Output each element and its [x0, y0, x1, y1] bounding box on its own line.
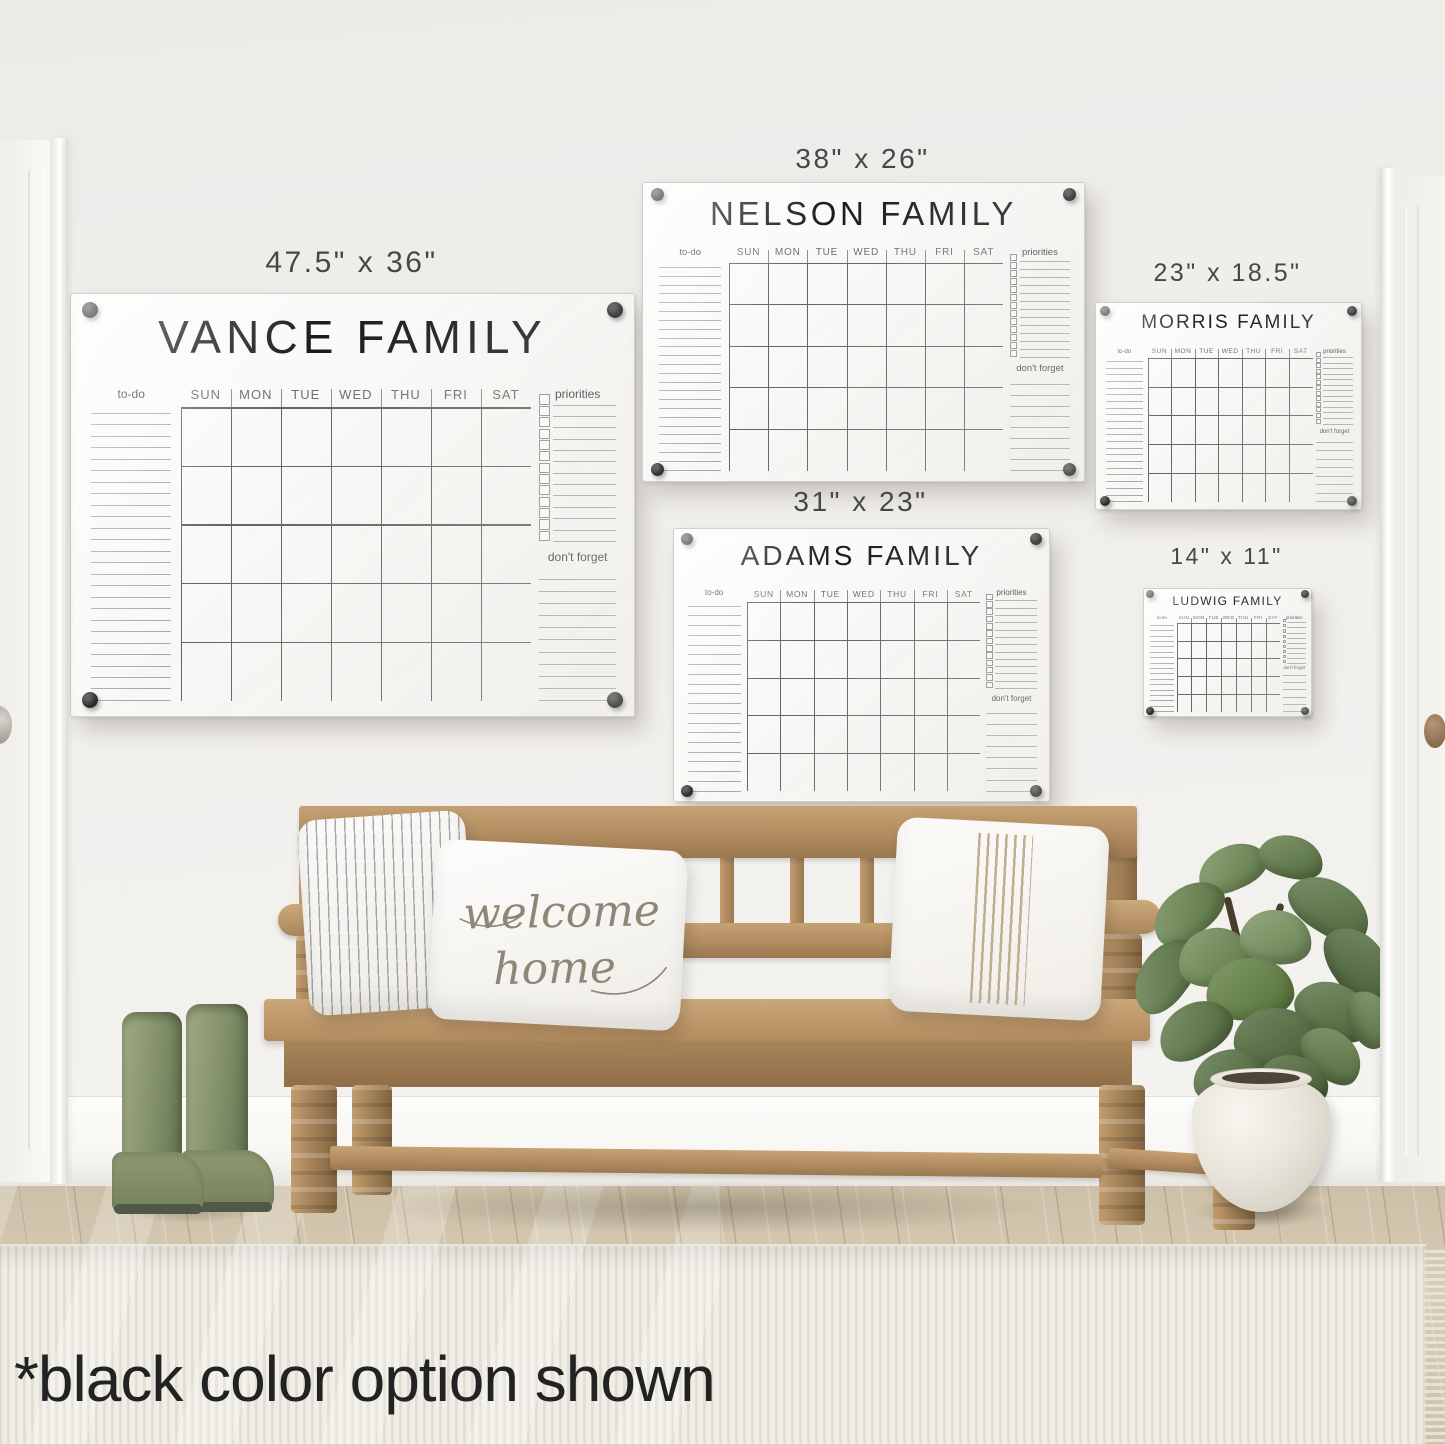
dont-forget-line: [986, 713, 1037, 714]
todo-line: [1106, 428, 1144, 429]
dont-forget-line: [1283, 689, 1306, 690]
priority-checkbox: [539, 451, 549, 461]
priority-line: [1287, 658, 1306, 659]
priority-checkbox: [986, 652, 993, 659]
todo-line: [1106, 441, 1144, 442]
priority-line: [1020, 349, 1070, 350]
priority-line: [1020, 325, 1070, 326]
todo-line: [659, 434, 722, 435]
priority-checkbox: [1283, 645, 1286, 648]
dont-forget-line: [1283, 704, 1306, 705]
grid-vline: [847, 602, 848, 792]
todo-line: [1106, 394, 1144, 395]
grid-vline: [914, 602, 915, 792]
priority-line: [1287, 622, 1306, 623]
priority-line: [553, 507, 616, 508]
grid-vline: [1171, 358, 1172, 502]
todo-line: [1150, 646, 1174, 647]
todo-line: [688, 684, 741, 685]
priority-checkbox: [1010, 302, 1017, 309]
standoff-dot: [1100, 496, 1110, 506]
todo-line: [91, 643, 171, 644]
todo-line: [688, 635, 741, 636]
day-header: FRI: [431, 388, 481, 401]
day-header: FRI: [925, 248, 964, 258]
day-header: SUN: [747, 590, 780, 599]
grid-vline: [1191, 623, 1192, 712]
day-header: THU: [1236, 616, 1251, 621]
dont-forget-line: [1283, 697, 1306, 698]
todo-line: [1106, 488, 1144, 489]
grid-vline: [1266, 623, 1267, 712]
grid-vline: [1148, 358, 1149, 502]
priority-checkbox: [1316, 369, 1321, 374]
standoff-dot: [681, 785, 693, 797]
priority-checkbox: [539, 440, 549, 450]
todo-line: [1106, 361, 1144, 362]
grid-hline: [181, 642, 531, 643]
day-header: WED: [1218, 349, 1242, 356]
todo-line: [1106, 421, 1144, 422]
grid-vline: [1221, 623, 1222, 712]
todo-line: [659, 311, 722, 312]
grid-hline: [1148, 444, 1313, 445]
dont-forget-line: [539, 688, 616, 689]
grid-hline: [729, 346, 1003, 347]
priority-checkbox: [986, 623, 993, 630]
day-header: SUN: [181, 388, 231, 401]
grid-vline: [847, 263, 848, 471]
todo-line: [91, 677, 171, 678]
priority-line: [995, 681, 1037, 682]
priority-checkbox: [1283, 655, 1286, 658]
dont-forget-line: [1316, 450, 1352, 451]
todo-line: [1150, 636, 1174, 637]
todo-line: [659, 408, 722, 409]
todo-line: [91, 608, 171, 609]
todo-line: [91, 654, 171, 655]
todo-line: [688, 791, 741, 792]
todo-line: [1106, 501, 1144, 502]
priority-checkbox: [1316, 402, 1321, 407]
dont-forget-line: [986, 768, 1037, 769]
day-header: FRI: [1265, 349, 1289, 356]
todo-line: [659, 293, 722, 294]
day-header: THU: [381, 388, 431, 401]
priority-checkbox: [1010, 334, 1017, 341]
grid-hline: [729, 387, 1003, 388]
day-header: SAT: [947, 590, 980, 599]
dont-forget-line: [986, 735, 1037, 736]
priority-line: [553, 541, 616, 542]
day-header: MON: [1191, 616, 1206, 621]
grid-hline: [747, 715, 980, 716]
priorities-label: priorities: [1010, 248, 1070, 258]
grid-vline: [768, 263, 769, 471]
priority-checkbox: [539, 474, 549, 484]
todo-line: [659, 364, 722, 365]
dont-forget-label: don't forget: [1314, 429, 1355, 435]
priority-line: [1020, 277, 1070, 278]
grid-vline: [1218, 358, 1219, 502]
priorities-label: priorities: [1316, 349, 1352, 355]
standoff-dot: [1347, 496, 1357, 506]
todo-line: [659, 452, 722, 453]
grid-vline: [1242, 358, 1243, 502]
todo-line: [1106, 481, 1144, 482]
priority-checkbox: [539, 519, 549, 529]
day-header: SUN: [729, 248, 768, 258]
grid-vline: [814, 602, 815, 792]
priority-line: [1020, 357, 1070, 358]
dont-forget-line: [1283, 682, 1306, 683]
todo-line: [659, 470, 722, 471]
grid-vline: [231, 407, 232, 701]
priority-checkbox: [1316, 363, 1321, 368]
todo-line: [688, 664, 741, 665]
standoff-dot: [1100, 306, 1110, 316]
dont-forget-line: [539, 591, 616, 592]
todo-line: [659, 302, 722, 303]
priority-checkbox: [1010, 350, 1017, 357]
priority-line: [1020, 317, 1070, 318]
todo-line: [91, 688, 171, 689]
todo-line: [659, 399, 722, 400]
bench-spindle: [790, 856, 804, 926]
todo-label: to-do: [688, 589, 741, 597]
dont-forget-line: [1010, 416, 1070, 417]
priority-checkbox: [1316, 374, 1321, 379]
grid-vline: [947, 602, 948, 792]
todo-line: [1106, 381, 1144, 382]
priorities-label: priorities: [986, 589, 1037, 597]
size-label: 38" x 26": [642, 143, 1083, 175]
priority-line: [1323, 390, 1353, 391]
priority-checkbox: [1316, 391, 1321, 396]
todo-line: [1106, 401, 1144, 402]
day-header: SUN: [1148, 349, 1172, 356]
todo-line: [1106, 374, 1144, 375]
day-header: THU: [1242, 349, 1266, 356]
dont-forget-label: don't forget: [1281, 666, 1307, 670]
day-header: SAT: [1289, 349, 1313, 356]
priority-checkbox: [1010, 278, 1017, 285]
day-header: WED: [847, 248, 886, 258]
size-label: 47.5" x 36": [70, 246, 633, 280]
board-title: NELSON FAMILY: [643, 197, 1084, 230]
priority-checkbox: [986, 616, 993, 623]
dont-forget-label: don't forget: [1006, 364, 1075, 374]
left-door-frame: [50, 138, 68, 1184]
todo-line: [91, 505, 171, 506]
priority-line: [995, 666, 1037, 667]
todo-line: [91, 597, 171, 598]
dont-forget-line: [539, 639, 616, 640]
dont-forget-label: don't forget: [534, 551, 622, 563]
priority-line: [1323, 374, 1353, 375]
priority-line: [1323, 385, 1353, 386]
priority-line: [1020, 285, 1070, 286]
todo-line: [1106, 388, 1144, 389]
right-door-molding: [1406, 206, 1419, 1156]
priority-line: [995, 622, 1037, 623]
priorities-label: priorities: [539, 388, 616, 400]
priority-line: [1020, 309, 1070, 310]
grid-vline: [1236, 623, 1237, 712]
priority-line: [553, 405, 616, 406]
priority-line: [995, 659, 1037, 660]
todo-line: [91, 585, 171, 586]
pillow-welcome: welcome home: [427, 839, 688, 1032]
priority-line: [1323, 368, 1353, 369]
grid-vline: [925, 263, 926, 471]
todo-line: [688, 625, 741, 626]
todo-line: [91, 424, 171, 425]
dont-forget-line: [1010, 427, 1070, 428]
todo-line: [1150, 700, 1174, 701]
todo-line: [91, 413, 171, 414]
todo-label: to-do: [91, 388, 171, 400]
priority-checkbox: [1316, 358, 1321, 363]
priority-line: [553, 473, 616, 474]
todo-line: [659, 276, 722, 277]
priority-checkbox: [1010, 342, 1017, 349]
todo-line: [91, 528, 171, 529]
priority-checkbox: [1010, 326, 1017, 333]
day-header: TUE: [807, 248, 846, 258]
priority-line: [995, 630, 1037, 631]
bench-spindle: [860, 856, 874, 926]
todo-line: [91, 551, 171, 552]
standoff-dot: [1146, 590, 1154, 598]
priority-checkbox: [1010, 310, 1017, 317]
grid-vline: [281, 407, 282, 701]
todo-line: [1150, 641, 1174, 642]
priority-line: [1287, 638, 1306, 639]
day-header: SAT: [964, 248, 1003, 258]
grid-vline: [1251, 623, 1252, 712]
todo-line: [659, 329, 722, 330]
priority-line: [553, 484, 616, 485]
grid-vline: [381, 407, 382, 701]
day-header: MON: [1171, 349, 1195, 356]
standoff-dot: [1063, 188, 1076, 201]
todo-line: [1106, 468, 1144, 469]
dont-forget-line: [1283, 675, 1306, 676]
board-title: MORRIS FAMILY: [1096, 313, 1361, 332]
priority-checkbox: [1283, 619, 1286, 622]
grid-vline: [181, 407, 182, 701]
day-header: WED: [331, 388, 381, 401]
grid-vline: [1177, 623, 1178, 712]
priority-line: [995, 644, 1037, 645]
home-text-line2: home: [493, 942, 616, 995]
priority-checkbox: [986, 660, 993, 667]
left-door-molding: [28, 170, 45, 1150]
grid-vline: [886, 263, 887, 471]
todo-line: [659, 461, 722, 462]
todo-line: [1106, 474, 1144, 475]
todo-line: [1150, 684, 1174, 685]
standoff-dot: [681, 533, 693, 545]
priorities-label: priorities: [1283, 616, 1306, 620]
priority-checkbox: [539, 508, 549, 518]
caption-text: *black color option shown: [14, 1342, 715, 1416]
priority-line: [553, 439, 616, 440]
dont-forget-line: [539, 603, 616, 604]
grid-vline: [331, 407, 332, 701]
priority-line: [1287, 633, 1306, 634]
day-header: TUE: [1195, 349, 1219, 356]
priority-line: [1323, 379, 1353, 380]
todo-line: [91, 493, 171, 494]
board-vance: VANCE FAMILYto-doSUNMONTUEWEDTHUFRISATpr…: [70, 293, 635, 717]
priority-checkbox: [986, 594, 993, 601]
todo-line: [91, 516, 171, 517]
priority-checkbox: [539, 485, 549, 495]
todo-line: [659, 267, 722, 268]
dont-forget-line: [986, 780, 1037, 781]
priority-checkbox: [1283, 640, 1286, 643]
pillow-striped-right: [888, 817, 1110, 1022]
todo-line: [91, 470, 171, 471]
day-header: MON: [768, 248, 807, 258]
todo-line: [688, 654, 741, 655]
grid-hline: [1148, 473, 1313, 474]
day-header: MON: [231, 388, 281, 401]
dont-forget-line: [1010, 395, 1070, 396]
welcome-home-text: welcome home: [427, 839, 688, 1032]
todo-line: [1150, 706, 1174, 707]
priority-checkbox: [539, 531, 549, 541]
priority-checkbox: [986, 608, 993, 615]
priority-checkbox: [1316, 380, 1321, 385]
priority-checkbox: [539, 497, 549, 507]
dont-forget-line: [539, 652, 616, 653]
grid-vline: [431, 407, 432, 701]
todo-line: [659, 443, 722, 444]
welcome-text-line1: welcome: [463, 885, 661, 939]
grid-vline: [729, 263, 730, 471]
dont-forget-line: [539, 627, 616, 628]
todo-line: [659, 417, 722, 418]
priority-line: [553, 450, 616, 451]
board-nelson: NELSON FAMILYto-doSUNMONTUEWEDTHUFRISATp…: [642, 182, 1085, 482]
dont-forget-line: [539, 676, 616, 677]
todo-line: [688, 703, 741, 704]
todo-line: [1150, 630, 1174, 631]
todo-line: [659, 320, 722, 321]
right-door-knob: [1424, 714, 1445, 748]
grid-header-underline: [747, 602, 980, 603]
priority-checkbox: [1010, 294, 1017, 301]
todo-line: [688, 615, 741, 616]
todo-line: [688, 781, 741, 782]
priority-line: [553, 461, 616, 462]
day-header: SAT: [1266, 616, 1281, 621]
dont-forget-line: [539, 579, 616, 580]
todo-line: [1106, 495, 1144, 496]
todo-line: [1150, 625, 1174, 626]
todo-line: [91, 539, 171, 540]
todo-line: [659, 382, 722, 383]
dont-forget-line: [1010, 438, 1070, 439]
todo-line: [688, 771, 741, 772]
todo-line: [1150, 690, 1174, 691]
board-morris: MORRIS FAMILYto-doSUNMONTUEWEDTHUFRISATp…: [1095, 302, 1362, 510]
dont-forget-line: [1010, 459, 1070, 460]
priority-line: [553, 427, 616, 428]
grid-hline: [1148, 415, 1313, 416]
grid-vline: [481, 407, 482, 701]
todo-line: [688, 752, 741, 753]
day-header: THU: [886, 248, 925, 258]
todo-line: [659, 373, 722, 374]
boot-left-foot: [112, 1152, 204, 1212]
todo-line: [1150, 695, 1174, 696]
priority-checkbox: [1283, 635, 1286, 638]
todo-label: to-do: [659, 248, 722, 258]
priority-checkbox: [539, 394, 549, 404]
grid-header-underline: [729, 263, 1003, 264]
size-label: 14" x 11": [1143, 543, 1310, 570]
priority-checkbox: [1316, 352, 1321, 357]
grid-vline: [747, 602, 748, 792]
todo-line: [1106, 434, 1144, 435]
todo-line: [659, 355, 722, 356]
day-header: THU: [880, 590, 913, 599]
priority-checkbox: [1010, 262, 1017, 269]
day-header: MON: [780, 590, 813, 599]
todo-label: to-do: [1150, 616, 1174, 620]
standoff-dot: [82, 692, 98, 708]
board-ludwig: LUDWIG FAMILYto-doSUNMONTUEWEDTHUFRISATp…: [1143, 588, 1312, 717]
pillow-stripe-band: [969, 832, 1033, 1005]
rug-fringe: [1424, 1250, 1445, 1444]
standoff-dot: [1063, 463, 1076, 476]
todo-line: [1150, 679, 1174, 680]
priority-line: [1323, 407, 1353, 408]
grid-hline: [181, 524, 531, 525]
priority-line: [995, 637, 1037, 638]
todo-label: to-do: [1106, 349, 1144, 355]
standoff-dot: [1347, 306, 1357, 316]
priority-checkbox: [539, 429, 549, 439]
todo-line: [1106, 408, 1144, 409]
todo-line: [91, 459, 171, 460]
priority-checkbox: [986, 645, 993, 652]
todo-line: [688, 732, 741, 733]
priority-checkbox: [1283, 624, 1286, 627]
priority-line: [1020, 293, 1070, 294]
priority-checkbox: [986, 682, 993, 689]
priority-line: [1020, 301, 1070, 302]
bench-spindle: [720, 856, 734, 926]
todo-line: [1106, 368, 1144, 369]
todo-line: [659, 338, 722, 339]
grid-hline: [729, 429, 1003, 430]
board-adams: ADAMS FAMILYto-doSUNMONTUEWEDTHUFRISATpr…: [673, 528, 1050, 802]
grid-hline: [181, 466, 531, 467]
todo-line: [659, 426, 722, 427]
priority-line: [553, 495, 616, 496]
todo-line: [91, 620, 171, 621]
priority-line: [1323, 357, 1353, 358]
grid-vline: [807, 263, 808, 471]
priority-line: [1287, 648, 1306, 649]
standoff-dot: [1030, 785, 1042, 797]
right-door-frame: [1380, 168, 1397, 1182]
